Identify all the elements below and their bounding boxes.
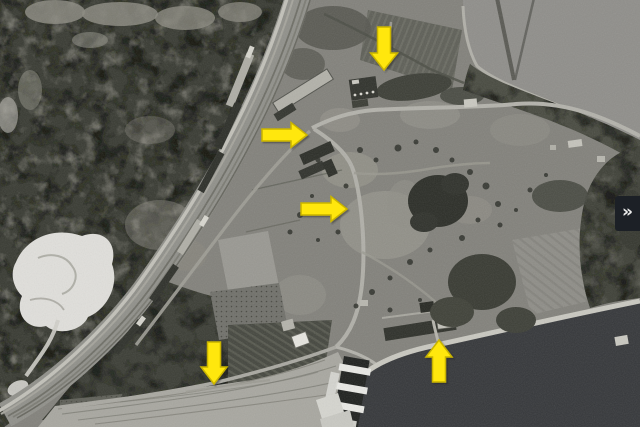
aerial-photograph <box>0 0 640 427</box>
double-chevron-right-icon: » <box>622 204 633 221</box>
expand-panel-button[interactable]: » <box>615 196 640 231</box>
aerial-photo-viewer: » <box>0 0 640 427</box>
